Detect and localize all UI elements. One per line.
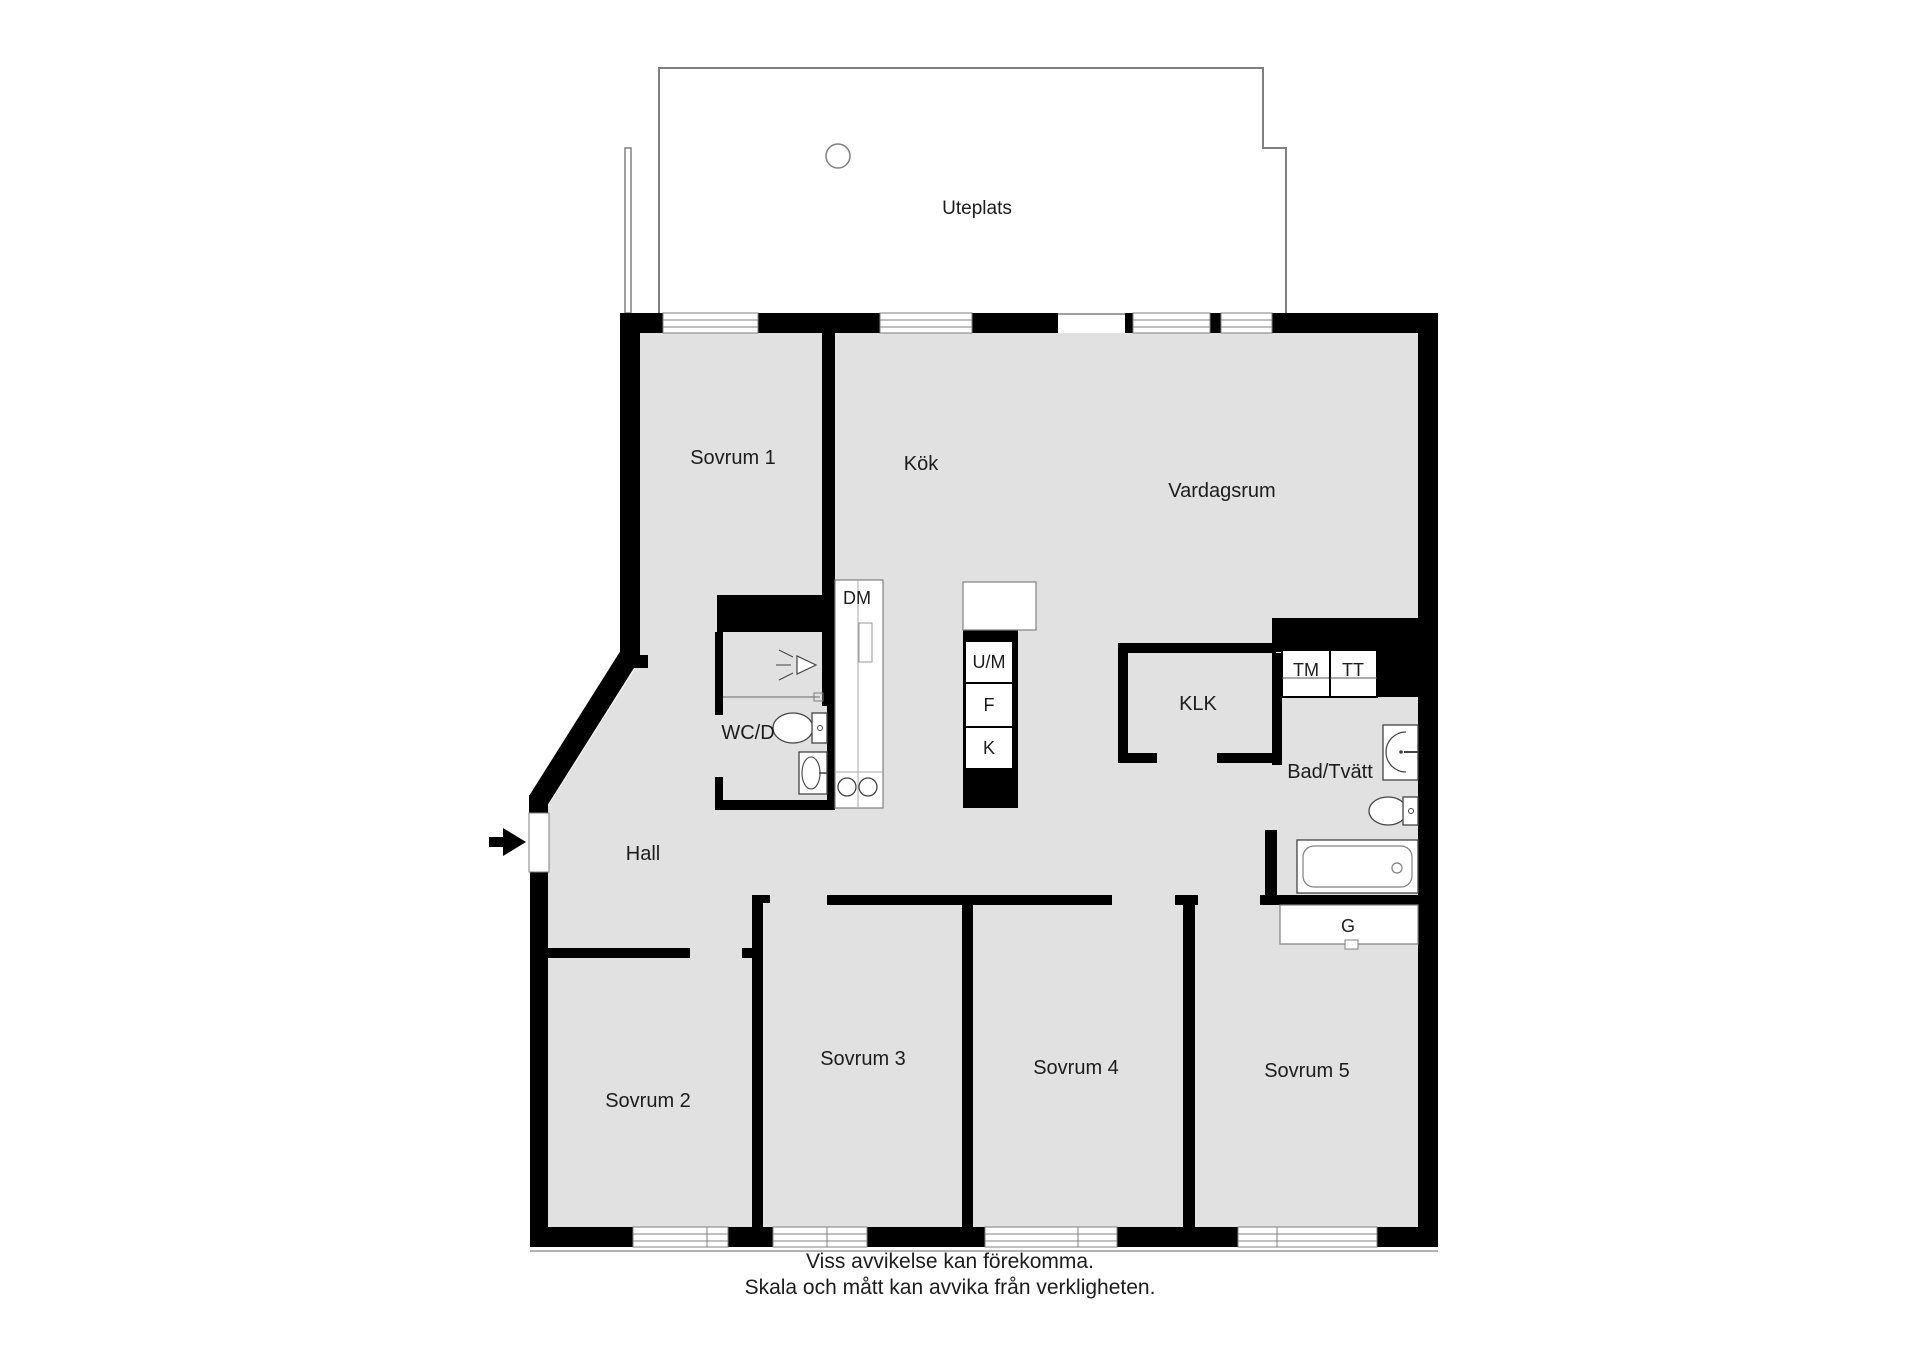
wall-south-east bbox=[1260, 895, 1425, 905]
floorplan-drawing: Uteplats bbox=[0, 0, 1920, 1357]
oven-microwave-label: U/M bbox=[973, 652, 1006, 672]
room-label-badtvatt: Bad/Tvätt bbox=[1287, 761, 1373, 783]
room-label-sovrum1: Sovrum 1 bbox=[690, 447, 776, 469]
disclaimer-line-2: Skala och mått kan avvika från verklighe… bbox=[745, 1276, 1156, 1299]
wardrobe-notch bbox=[1345, 940, 1358, 949]
toilet-icon bbox=[1369, 797, 1418, 825]
wall-bottom-1 bbox=[530, 1227, 633, 1247]
patio-column-icon bbox=[826, 144, 850, 168]
patio-outline bbox=[659, 68, 1286, 313]
washing-machine: TM bbox=[1282, 650, 1330, 697]
wall-sovrum2-north bbox=[545, 948, 690, 958]
window bbox=[985, 1227, 1117, 1247]
wall-top-4 bbox=[1125, 313, 1133, 333]
room-label-kok: Kök bbox=[904, 453, 939, 475]
wardrobe-label: G bbox=[1341, 916, 1355, 936]
wall-wcd-top bbox=[717, 595, 827, 632]
wardrobe: G bbox=[1280, 905, 1418, 949]
wall-bottom-4 bbox=[1117, 1227, 1238, 1247]
disclaimer-line-1: Viss avvikelse kan förekomma. bbox=[806, 1250, 1094, 1273]
wall-wcd-west-upper bbox=[715, 632, 723, 715]
wall-klk-east bbox=[1272, 653, 1282, 765]
wall-top-6 bbox=[1272, 313, 1438, 333]
dryer: TT bbox=[1330, 650, 1377, 697]
room-label-sovrum5: Sovrum 5 bbox=[1264, 1060, 1350, 1082]
bad-shaft-block bbox=[1377, 650, 1418, 697]
entrance-door bbox=[529, 813, 549, 872]
wall-bad-north bbox=[1272, 618, 1418, 652]
window bbox=[1133, 313, 1210, 333]
window bbox=[880, 313, 972, 333]
dishwasher-label: DM bbox=[843, 588, 871, 608]
floorplan-page: Uteplats bbox=[0, 0, 1920, 1357]
window bbox=[633, 1227, 728, 1247]
wall-right bbox=[1418, 313, 1438, 1247]
patio: Uteplats bbox=[625, 68, 1286, 313]
room-label-sovrum3: Sovrum 3 bbox=[820, 1048, 906, 1070]
counter-cabinet bbox=[859, 623, 872, 662]
window bbox=[773, 1227, 867, 1247]
toilet-icon bbox=[773, 713, 827, 743]
wall-top-5 bbox=[1210, 313, 1221, 333]
wall-klk-north bbox=[1118, 643, 1276, 653]
wall-sovrum4-5 bbox=[1183, 900, 1195, 1227]
wall-sovrum1-jamb bbox=[635, 655, 648, 668]
sink-icon bbox=[799, 752, 827, 794]
window bbox=[1238, 1227, 1377, 1247]
wall-top-3 bbox=[972, 313, 1058, 333]
windows-top bbox=[663, 313, 1272, 333]
window bbox=[1221, 313, 1272, 333]
wall-bottom-5 bbox=[1377, 1227, 1438, 1247]
sink-icon bbox=[1383, 725, 1418, 780]
disclaimer: Viss avvikelse kan förekomma. Skala och … bbox=[745, 1250, 1156, 1299]
wall-klk-south-w bbox=[1118, 753, 1157, 763]
room-label-klk: KLK bbox=[1179, 693, 1217, 715]
washing-machine-label: TM bbox=[1293, 660, 1319, 680]
wall-left-lower bbox=[530, 870, 548, 1227]
freezer-label: F bbox=[984, 695, 995, 715]
wall-sovrum2-3 bbox=[752, 895, 763, 1227]
room-label-wcd: WC/D bbox=[721, 722, 774, 744]
wall-bottom-3 bbox=[867, 1227, 985, 1247]
window bbox=[663, 313, 758, 333]
wall-left-mid bbox=[529, 795, 548, 815]
wall-bad-west bbox=[1265, 830, 1277, 905]
wall-left-upper bbox=[620, 313, 640, 668]
dryer-label: TT bbox=[1342, 660, 1364, 680]
patio-label: Uteplats bbox=[942, 198, 1012, 219]
patio-door-opening bbox=[1058, 313, 1125, 333]
wall-wcd-south bbox=[715, 800, 835, 810]
island-top bbox=[963, 582, 1036, 630]
room-label-hall: Hall bbox=[626, 843, 660, 865]
wall-top-2 bbox=[758, 313, 880, 333]
room-label-sovrum4: Sovrum 4 bbox=[1033, 1057, 1119, 1079]
bathtub-icon bbox=[1297, 840, 1418, 893]
wall-bottom-2 bbox=[728, 1227, 773, 1247]
fridge-label: K bbox=[983, 738, 995, 758]
kitchen-counter: DM bbox=[835, 580, 883, 808]
room-label-sovrum2: Sovrum 2 bbox=[605, 1090, 691, 1112]
wall-sovrum2-jamb bbox=[742, 948, 752, 958]
wall-klk-west bbox=[1118, 653, 1128, 763]
entrance-arrow-icon bbox=[489, 828, 526, 856]
wall-wcd-east bbox=[827, 632, 835, 800]
wall-sovrum3-4 bbox=[962, 900, 973, 1227]
room-label-vardagsrum: Vardagsrum bbox=[1168, 480, 1275, 502]
patio-left-railing bbox=[625, 148, 631, 313]
entrance bbox=[489, 813, 549, 872]
